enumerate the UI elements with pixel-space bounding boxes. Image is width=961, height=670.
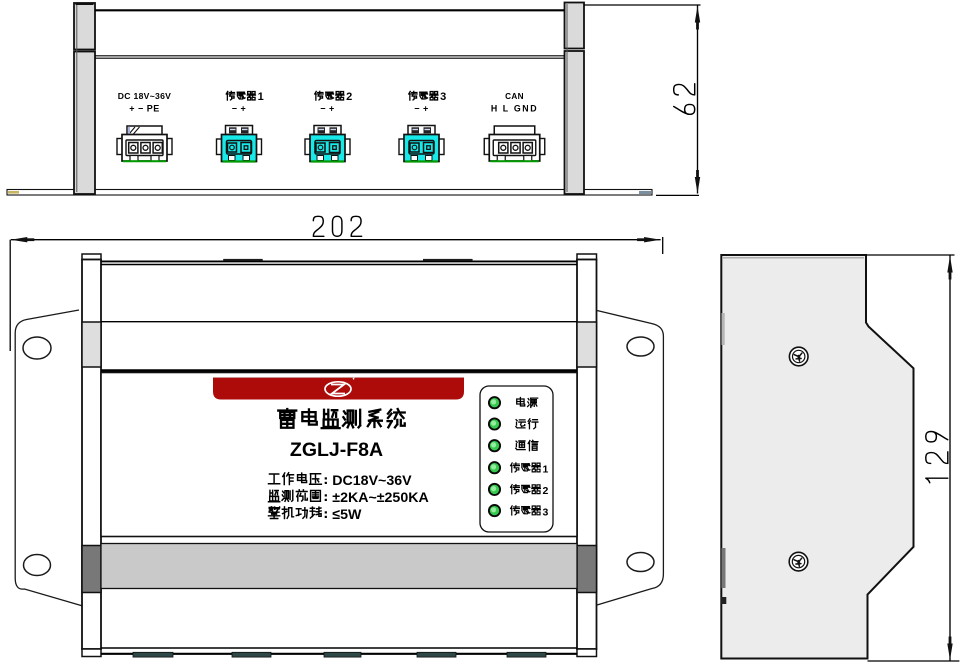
svg-text:≤5W: ≤5W — [332, 507, 362, 523]
svg-text:− +: − + — [232, 104, 247, 114]
svg-text:±2KA~±250KA: ±2KA~±250KA — [332, 490, 428, 506]
svg-text:2: 2 — [543, 485, 549, 497]
svg-text:− +: − + — [320, 104, 335, 114]
svg-text:1: 1 — [543, 464, 549, 476]
svg-text:ZGLJ-F8A: ZGLJ-F8A — [290, 439, 383, 461]
svg-text:H L GND: H L GND — [491, 104, 538, 114]
svg-text:3: 3 — [543, 506, 549, 518]
svg-text:1: 1 — [258, 91, 264, 103]
svg-text:− +: − + — [414, 104, 429, 114]
svg-text:2: 2 — [346, 91, 352, 103]
svg-text:CAN: CAN — [505, 92, 524, 101]
svg-text:DC18V~36V: DC18V~36V — [332, 473, 412, 489]
svg-text:DC 18V~36V: DC 18V~36V — [118, 91, 171, 101]
svg-text:+ − PE: + − PE — [129, 104, 160, 114]
svg-text:3: 3 — [440, 91, 446, 103]
